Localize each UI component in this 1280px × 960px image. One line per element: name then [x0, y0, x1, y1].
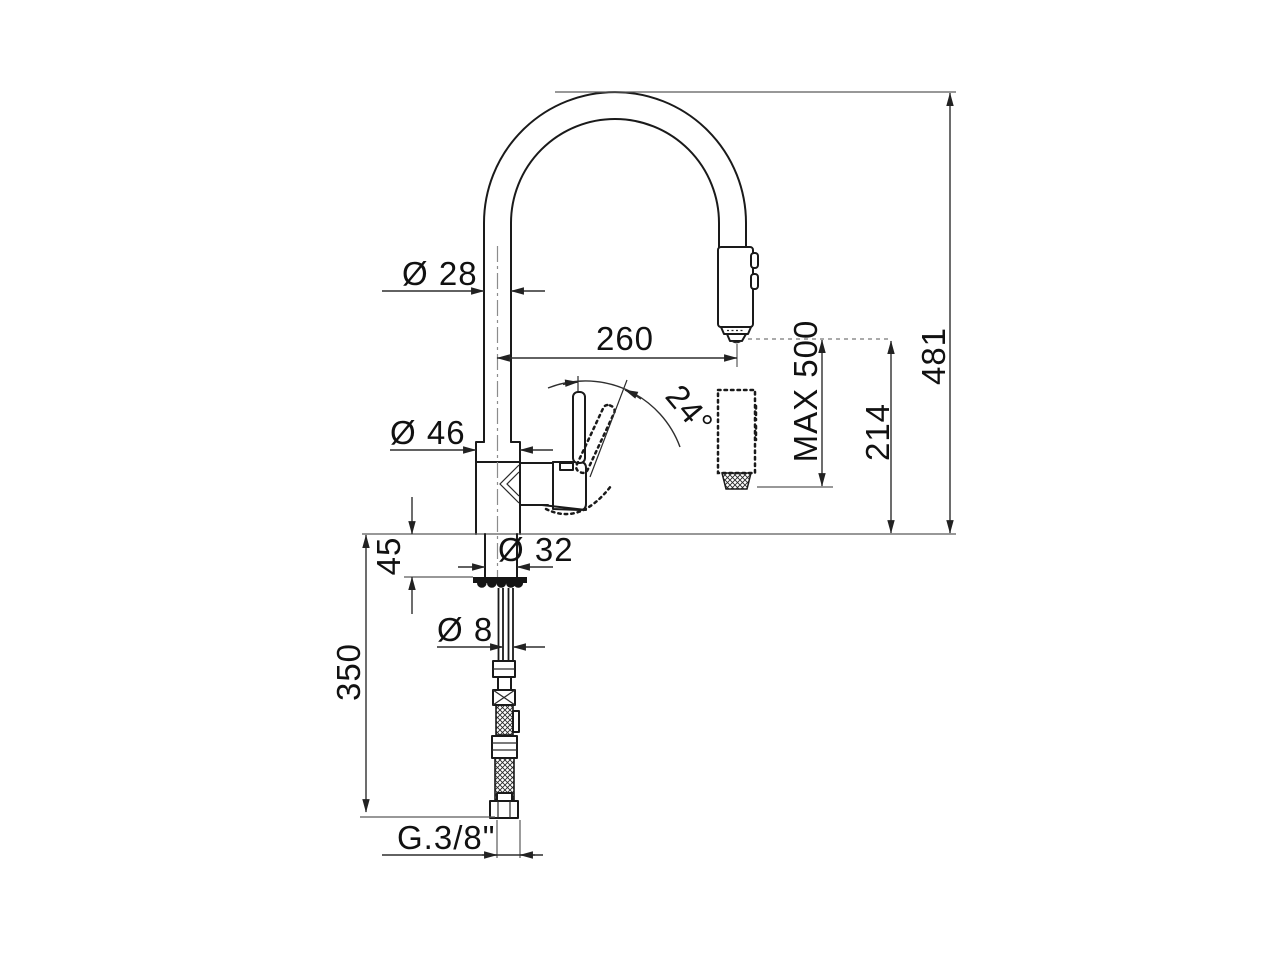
valve-cylinder — [520, 462, 553, 506]
dim-deck-thickness: 45 — [370, 497, 473, 614]
spout-arc-outer — [484, 92, 746, 442]
dim-connection-thread-label: G.3/8" — [397, 819, 495, 856]
dim-deck-thickness-label: 45 — [370, 537, 407, 576]
hose-end-collar — [497, 793, 512, 801]
spray-head-button-bottom — [751, 274, 758, 289]
braided-hose-upper — [496, 705, 513, 735]
dim-body-diameter: Ø 46 — [390, 414, 553, 451]
dim-overall-height-label: 481 — [915, 327, 952, 385]
dim-mounting-hole-diameter-label: Ø 32 — [498, 531, 574, 568]
spray-head-button-top — [751, 253, 758, 268]
spray-head — [718, 247, 753, 327]
dim-hose-max-extension: MAX 500 — [757, 320, 833, 487]
mixer-body — [476, 442, 586, 534]
aerator — [721, 327, 751, 343]
mounting-nut — [473, 577, 527, 588]
dim-spray-hose-diameter-label: Ø 8 — [437, 611, 493, 648]
dim-spout-reach: 260 — [497, 320, 737, 367]
dim-outlet-height-label: 214 — [859, 403, 896, 461]
handle-socket-notch — [560, 463, 573, 470]
dim-body-diameter-label: Ø 46 — [390, 414, 466, 451]
hose-side-tab — [513, 711, 519, 732]
dim-spray-hose-diameter: Ø 8 — [437, 611, 545, 648]
hose-end-hex-nut — [490, 801, 518, 818]
dim-spout-tube-diameter-label: Ø 28 — [402, 255, 478, 292]
supply-hoses — [499, 588, 514, 661]
spray-head-extended — [718, 390, 756, 489]
aerator-extended — [722, 473, 751, 489]
dim-hose-max-extension-label: MAX 500 — [787, 320, 824, 463]
hose-fittings — [490, 661, 519, 818]
faucet-technical-drawing: Ø 28 260 481 214 MAX 500 Ø 46 24° — [0, 0, 1280, 960]
dim-connection-thread: G.3/8" — [382, 819, 543, 858]
drawing-canvas: Ø 28 260 481 214 MAX 500 Ø 46 24° — [0, 0, 1280, 960]
body-funnel-joint — [500, 465, 519, 503]
dim-handle-angle-label: 24° — [659, 377, 721, 441]
dim-spout-tube-diameter: Ø 28 — [382, 255, 545, 292]
dim-hose-length-label: 350 — [330, 643, 367, 701]
dim-mounting-hole-diameter: Ø 32 — [458, 531, 574, 568]
dim-spout-reach-label: 260 — [596, 320, 654, 357]
